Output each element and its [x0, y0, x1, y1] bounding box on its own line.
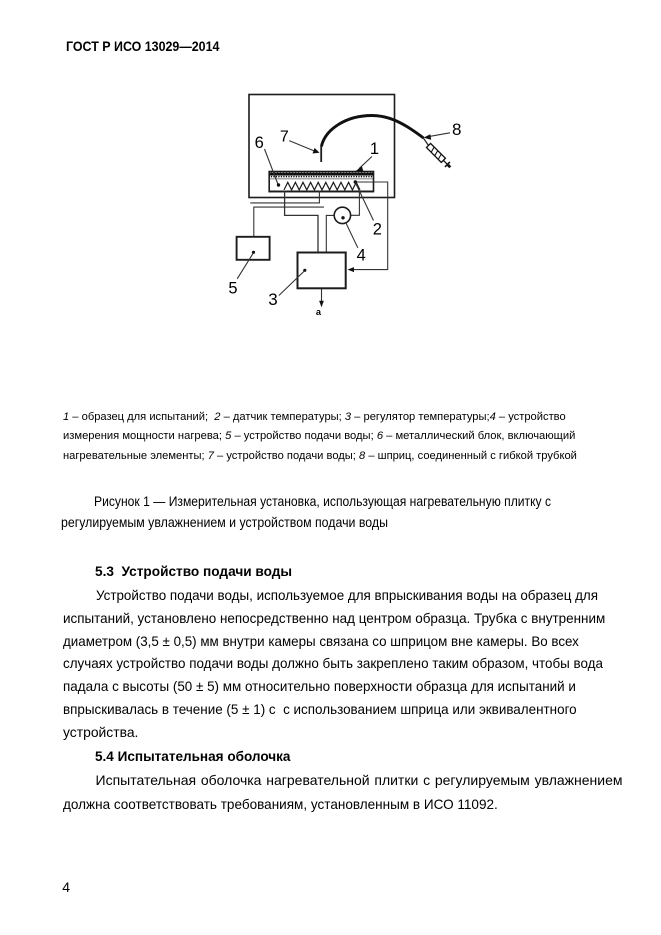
svg-text:8: 8 — [452, 120, 461, 139]
svg-text:7: 7 — [280, 128, 289, 145]
svg-text:5: 5 — [228, 280, 237, 298]
svg-text:3: 3 — [268, 290, 277, 309]
svg-text:a: a — [316, 307, 322, 317]
svg-text:6: 6 — [255, 134, 264, 152]
svg-text:2: 2 — [373, 220, 382, 238]
svg-text:4: 4 — [357, 246, 366, 264]
svg-text:1: 1 — [370, 140, 379, 158]
